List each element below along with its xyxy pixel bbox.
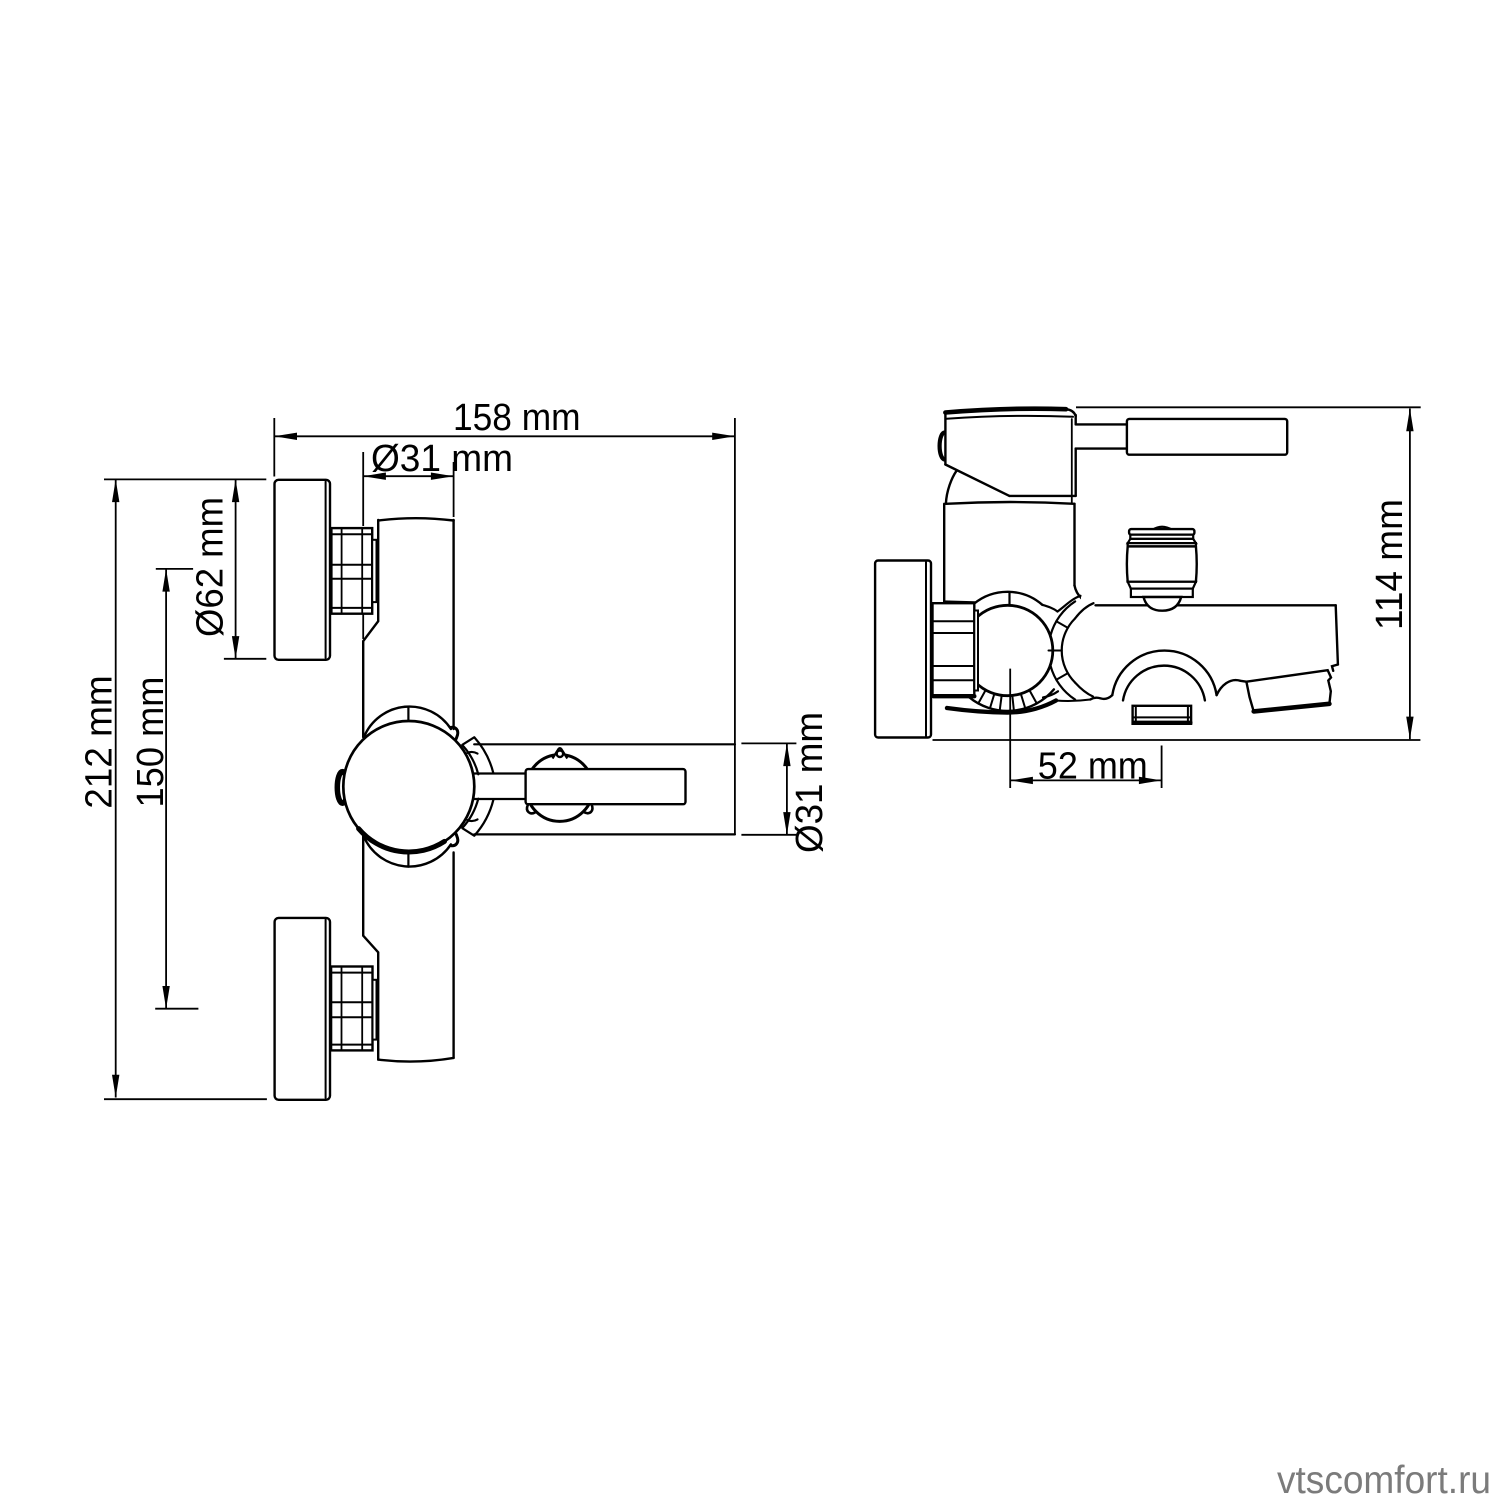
svg-text:Ø31 mm: Ø31 mm	[789, 712, 831, 853]
svg-text:52 mm: 52 mm	[1038, 746, 1148, 788]
svg-text:vtscomfort.ru: vtscomfort.ru	[1277, 1459, 1491, 1502]
svg-text:212 mm: 212 mm	[79, 675, 121, 809]
svg-text:150 mm: 150 mm	[130, 677, 172, 808]
svg-text:114 mm: 114 mm	[1369, 499, 1411, 630]
svg-text:Ø62 mm: Ø62 mm	[190, 497, 232, 637]
svg-text:Ø31 mm: Ø31 mm	[371, 438, 513, 480]
svg-text:158 mm: 158 mm	[453, 397, 581, 439]
